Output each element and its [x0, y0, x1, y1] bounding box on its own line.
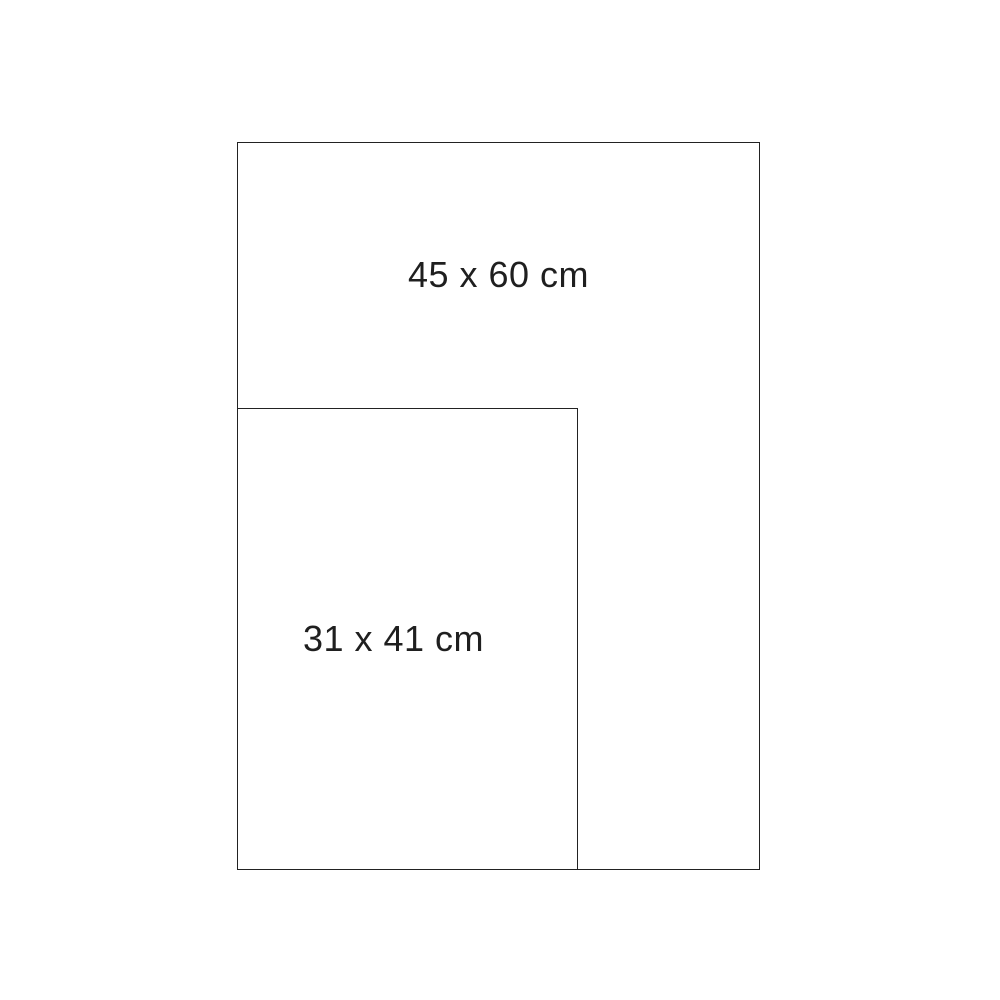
size-comparison-diagram: 45 x 60 cm 31 x 41 cm: [0, 0, 1000, 1000]
rectangle-31x41-label: 31 x 41 cm: [224, 409, 563, 869]
rectangle-31x41: 31 x 41 cm: [237, 408, 578, 870]
rectangle-45x60-label: 45 x 60 cm: [238, 143, 759, 407]
